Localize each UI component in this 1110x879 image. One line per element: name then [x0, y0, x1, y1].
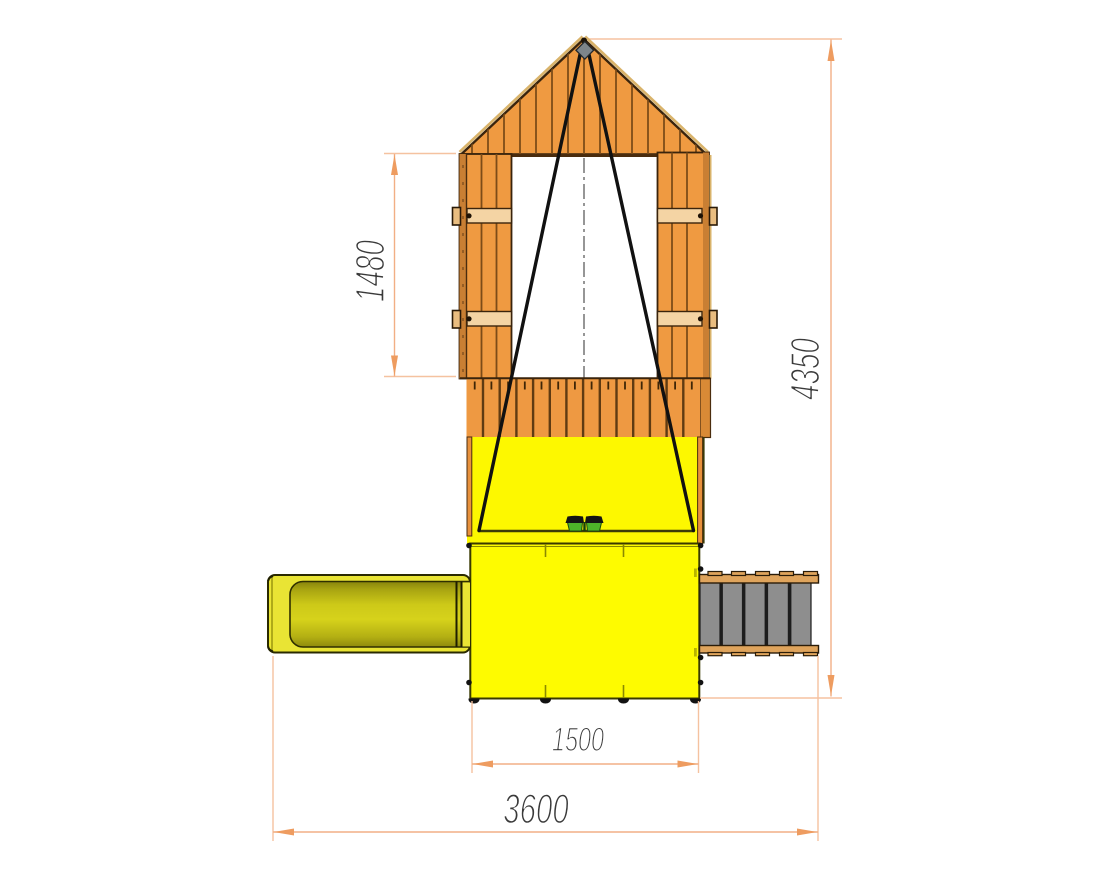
svg-text:1480: 1480 — [348, 240, 394, 302]
svg-text:3600: 3600 — [503, 785, 568, 833]
svg-text:1500: 1500 — [552, 722, 604, 759]
svg-text:4350: 4350 — [783, 338, 829, 400]
